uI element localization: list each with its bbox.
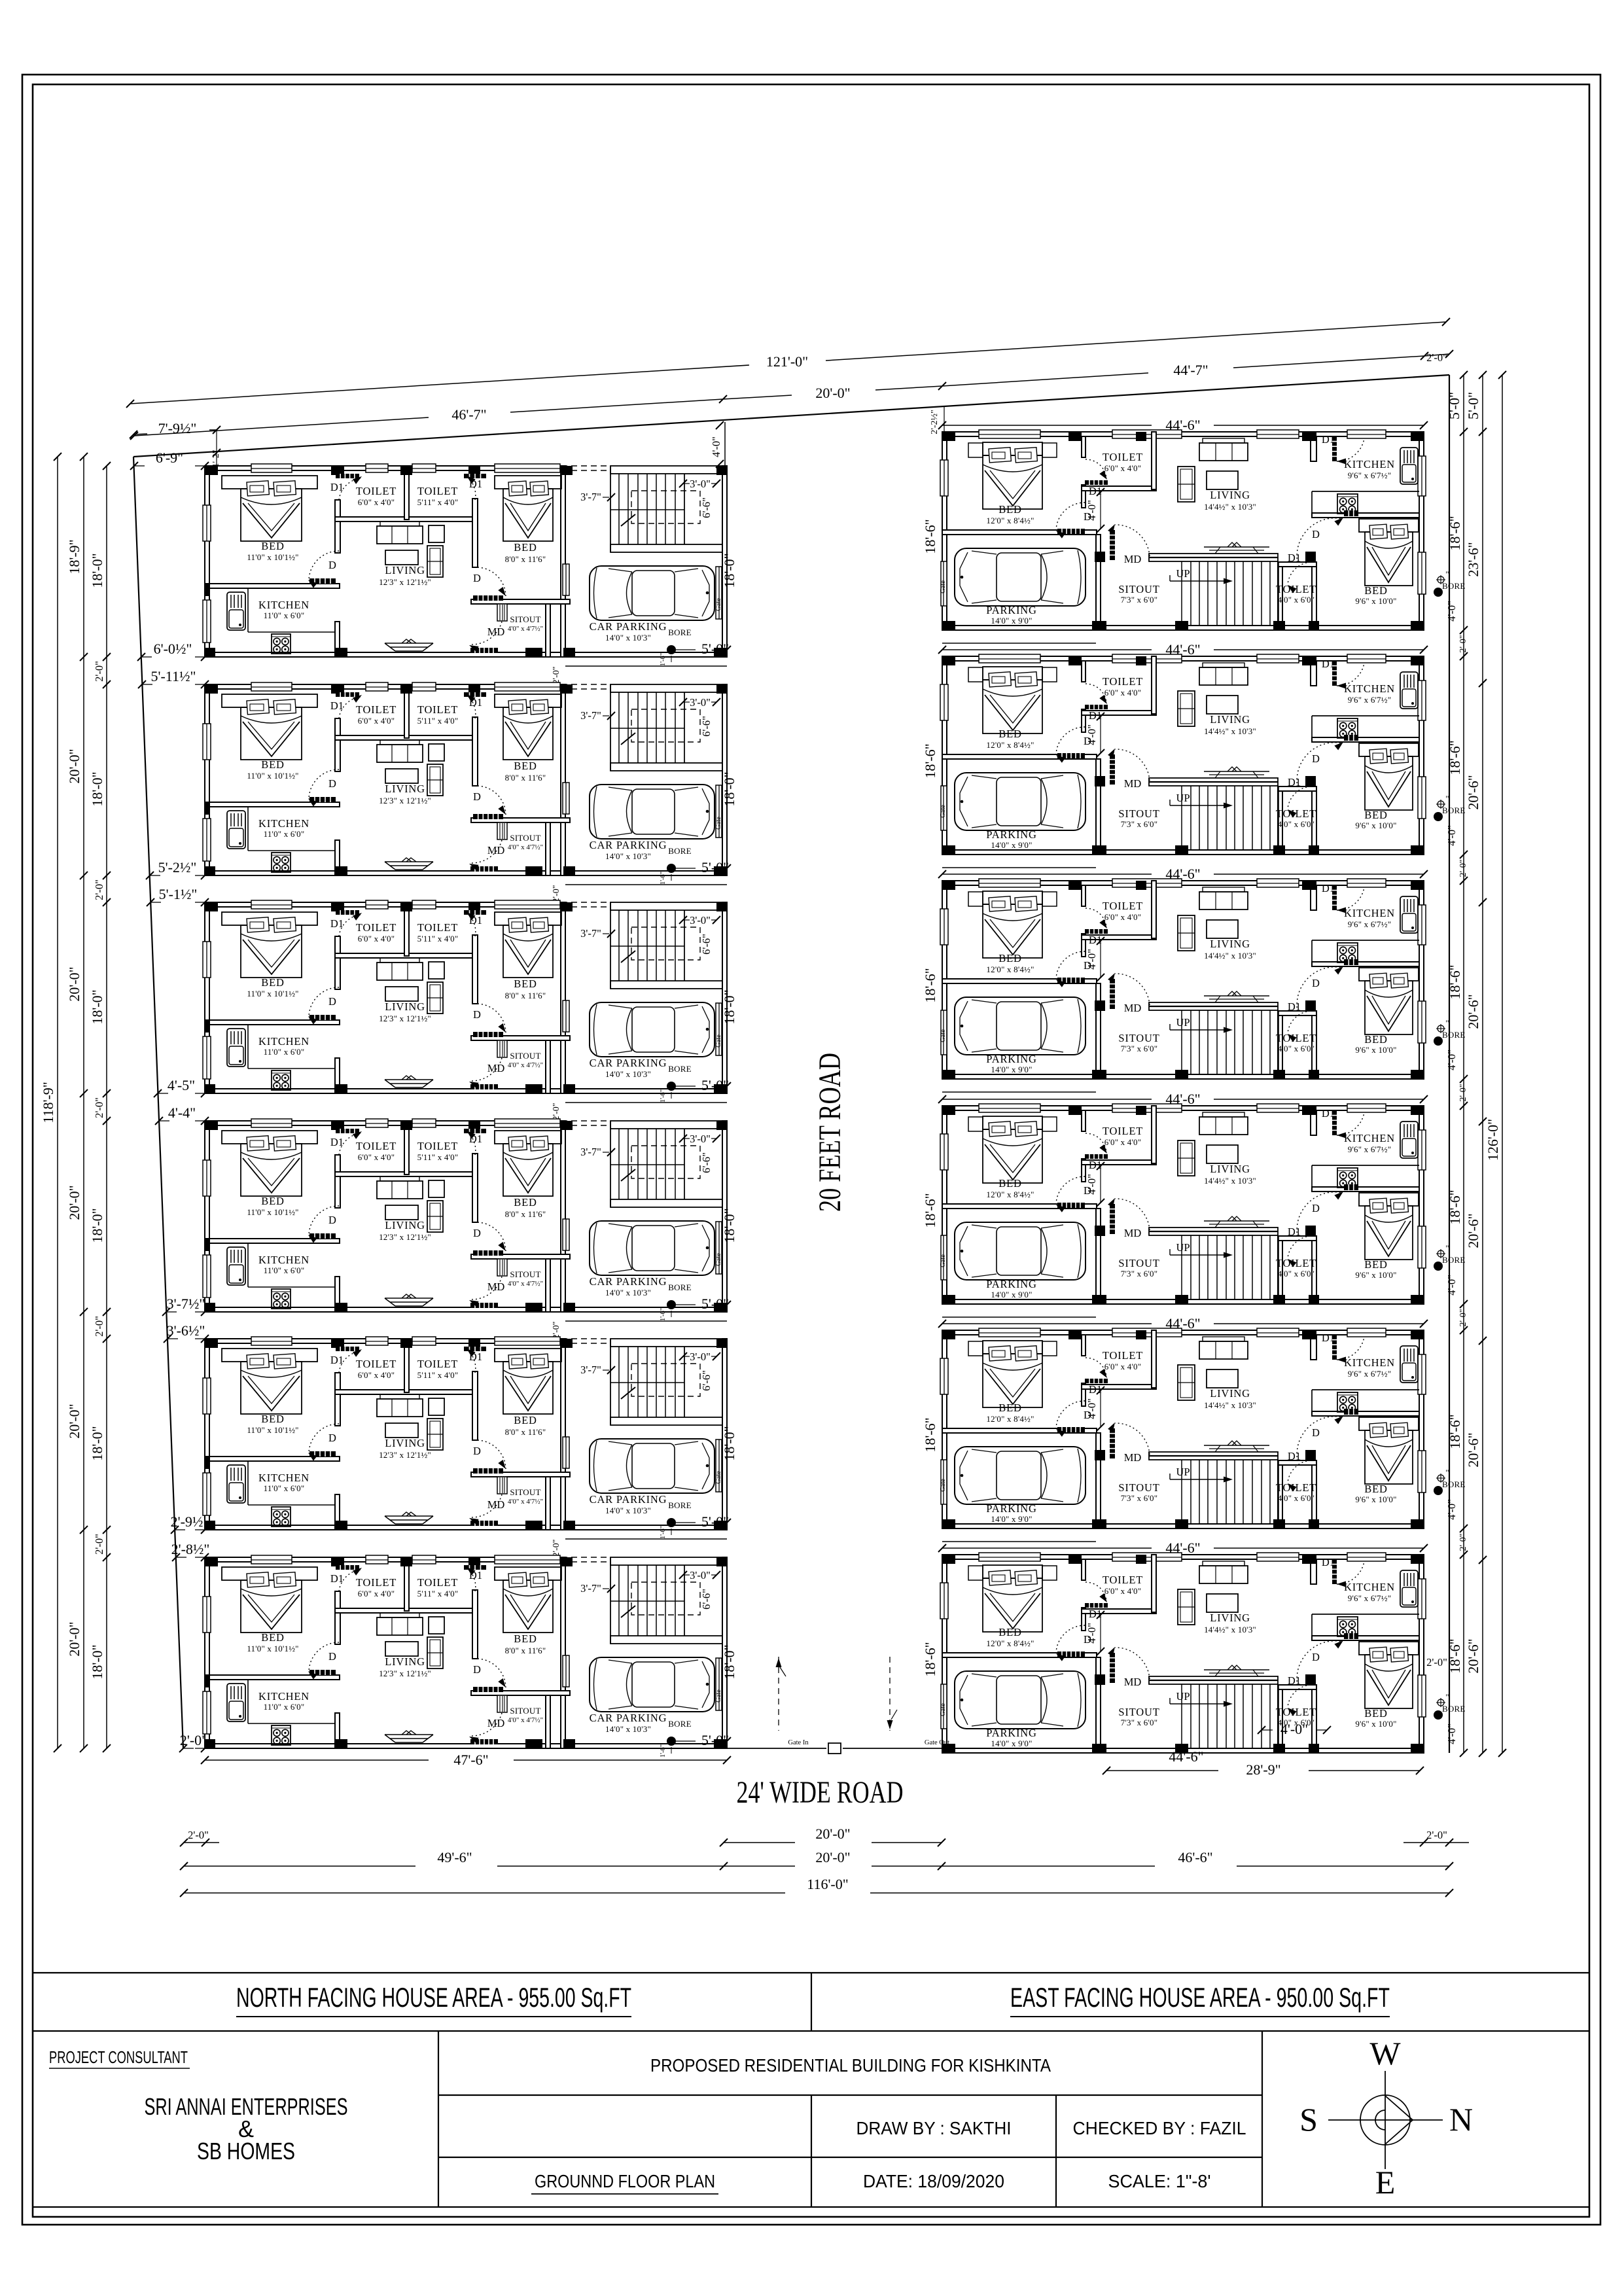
svg-text:18'-0": 18'-0" (721, 1426, 737, 1460)
svg-text:2'-0": 2'-0" (93, 1316, 105, 1337)
svg-text:49'-6": 49'-6" (437, 1849, 472, 1865)
svg-text:20'-6": 20'-6" (1465, 775, 1481, 809)
svg-text:18'-6": 18'-6" (922, 1417, 938, 1452)
svg-text:EAST FACING HOUSE AREA - 950.0: EAST FACING HOUSE AREA - 950.00 Sq.FT (1010, 1982, 1390, 2013)
svg-text:2'-0": 2'-0" (552, 667, 561, 684)
svg-text:DATE: 18/09/2020: DATE: 18/09/2020 (863, 2171, 1004, 2191)
svg-text:2'-0": 2'-0" (1426, 1656, 1447, 1669)
svg-text:2'-0": 2'-0" (552, 1103, 561, 1121)
svg-text:3'-6½": 3'-6½" (167, 1322, 205, 1339)
svg-text:5'-11½": 5'-11½" (151, 668, 196, 684)
svg-text:2'-0": 2'-0" (552, 1540, 561, 1557)
svg-text:5'-2½": 5'-2½" (158, 859, 197, 875)
svg-text:4'-0": 4'-0" (1445, 1723, 1458, 1744)
svg-text:4'-4": 4'-4" (168, 1104, 196, 1121)
svg-text:44'-7": 44'-7" (1173, 362, 1208, 378)
svg-text:44'-6": 44'-6" (1169, 1748, 1203, 1765)
svg-text:126'-0": 126'-0" (1485, 1119, 1501, 1161)
svg-text:20'-0": 20'-0" (815, 1849, 850, 1865)
svg-text:28'-9": 28'-9" (1246, 1761, 1280, 1778)
svg-text:4'-0": 4'-0" (1445, 1275, 1458, 1296)
svg-text:4'-0": 4'-0" (1445, 1050, 1458, 1070)
svg-text:5'-0": 5'-0" (1446, 392, 1462, 419)
svg-text:18'-6": 18'-6" (1447, 1414, 1463, 1449)
svg-text:20'-0": 20'-0" (815, 1826, 850, 1842)
svg-text:118'-9": 118'-9" (40, 1082, 56, 1123)
svg-text:20'-0": 20'-0" (66, 1404, 82, 1438)
svg-text:18'-6": 18'-6" (922, 1193, 938, 1227)
svg-text:18'-0": 18'-0" (721, 1644, 737, 1679)
svg-text:46'-6": 46'-6" (1178, 1849, 1212, 1865)
svg-text:20'-0": 20'-0" (66, 749, 82, 783)
svg-text:116'-0": 116'-0" (807, 1876, 848, 1892)
svg-text:2'-2½": 2'-2½" (930, 410, 940, 434)
svg-text:18'-0": 18'-0" (721, 989, 737, 1024)
svg-text:46'-7": 46'-7" (451, 406, 486, 423)
svg-text:2'-0": 2'-0" (188, 1829, 209, 1841)
svg-text:Gate In: Gate In (788, 1739, 809, 1746)
svg-text:2'-0": 2'-0" (93, 879, 105, 900)
svg-text:5'-0": 5'-0" (1465, 392, 1481, 419)
svg-text:E: E (1375, 2164, 1396, 2200)
svg-text:4'-0": 4'-0" (1445, 825, 1458, 846)
svg-text:18'-0": 18'-0" (89, 1208, 105, 1243)
svg-text:20'-0": 20'-0" (815, 385, 850, 401)
svg-text:6'-9": 6'-9" (156, 450, 183, 466)
svg-text:5'-1½": 5'-1½" (159, 886, 198, 902)
svg-text:18'-0": 18'-0" (721, 1208, 737, 1243)
svg-text:24' WIDE ROAD: 24' WIDE ROAD (737, 1775, 904, 1810)
svg-text:18'-6": 18'-6" (922, 519, 938, 554)
svg-text:S: S (1299, 2101, 1318, 2138)
svg-text:23'-6": 23'-6" (1465, 542, 1481, 576)
svg-text:2'-0": 2'-0" (93, 661, 105, 682)
svg-text:20 FEET ROAD: 20 FEET ROAD (813, 1053, 847, 1212)
svg-text:6'-0½": 6'-0½" (154, 641, 192, 657)
svg-text:18'-0": 18'-0" (89, 1644, 105, 1679)
svg-text:7'-9½": 7'-9½" (158, 420, 197, 436)
svg-text:2'-0": 2'-0" (1426, 351, 1447, 364)
svg-text:3'-7½": 3'-7½" (167, 1296, 205, 1312)
svg-text:18'-0": 18'-0" (89, 553, 105, 588)
svg-text:2'-0": 2'-0" (1426, 1829, 1447, 1841)
svg-text:W: W (1369, 2035, 1401, 2072)
svg-text:18'-6": 18'-6" (1447, 740, 1463, 775)
svg-text:PROJECT CONSULTANT: PROJECT CONSULTANT (49, 2047, 188, 2067)
svg-text:47'-6": 47'-6" (453, 1752, 488, 1768)
svg-text:18'-6": 18'-6" (1447, 964, 1463, 999)
svg-text:121'-0": 121'-0" (766, 353, 808, 370)
svg-text:18'-6": 18'-6" (922, 968, 938, 1002)
svg-text:20'-6": 20'-6" (1465, 1213, 1481, 1248)
svg-text:20'-6": 20'-6" (1465, 1432, 1481, 1467)
svg-text:18'-6": 18'-6" (922, 1642, 938, 1676)
svg-text:4'-0": 4'-0" (710, 436, 722, 457)
svg-text:18'-6": 18'-6" (1447, 1190, 1463, 1224)
svg-text:CHECKED BY : FAZIL: CHECKED BY : FAZIL (1073, 2118, 1246, 2138)
svg-text:2'-0": 2'-0" (93, 1534, 105, 1555)
svg-text:4'-0": 4'-0" (1280, 1721, 1308, 1737)
svg-text:20'-0": 20'-0" (66, 1185, 82, 1220)
svg-text:18'-6": 18'-6" (1447, 1638, 1463, 1673)
svg-text:N: N (1449, 2101, 1473, 2138)
svg-text:SB HOMES: SB HOMES (197, 2138, 295, 2164)
svg-text:4'-0": 4'-0" (1445, 601, 1458, 622)
svg-text:20'-6": 20'-6" (1465, 994, 1481, 1029)
svg-text:18'-0": 18'-0" (721, 553, 737, 588)
svg-text:18'-0": 18'-0" (721, 771, 737, 806)
svg-text:20'-0": 20'-0" (66, 1621, 82, 1656)
svg-text:NORTH FACING HOUSE AREA - 955.: NORTH FACING HOUSE AREA - 955.00 Sq.FT (236, 1982, 631, 2013)
svg-text:SCALE: 1"-8': SCALE: 1"-8' (1108, 2171, 1211, 2191)
svg-text:4'-5": 4'-5" (168, 1077, 195, 1093)
svg-text:DRAW BY : SAKTHI: DRAW BY : SAKTHI (856, 2118, 1012, 2138)
svg-text:18'-0": 18'-0" (89, 771, 105, 806)
svg-text:GROUNND FLOOR PLAN: GROUNND FLOOR PLAN (535, 2171, 715, 2191)
svg-text:2'-0": 2'-0" (93, 1097, 105, 1118)
svg-text:2'-8½": 2'-8½" (171, 1541, 210, 1557)
svg-text:18'-9": 18'-9" (66, 539, 82, 574)
svg-text:4'-0": 4'-0" (1445, 1499, 1458, 1520)
svg-text:18'-6": 18'-6" (1447, 516, 1463, 550)
svg-text:18'-6": 18'-6" (922, 743, 938, 778)
svg-text:PROPOSED RESIDENTIAL BUILDING: PROPOSED RESIDENTIAL BUILDING FOR KISHKI… (650, 2055, 1051, 2075)
svg-text:Gate Out: Gate Out (925, 1739, 949, 1746)
svg-text:20'-0": 20'-0" (66, 966, 82, 1001)
svg-text:18'-0": 18'-0" (89, 989, 105, 1024)
svg-text:20'-6": 20'-6" (1465, 1638, 1481, 1673)
svg-text:18'-0": 18'-0" (89, 1426, 105, 1460)
